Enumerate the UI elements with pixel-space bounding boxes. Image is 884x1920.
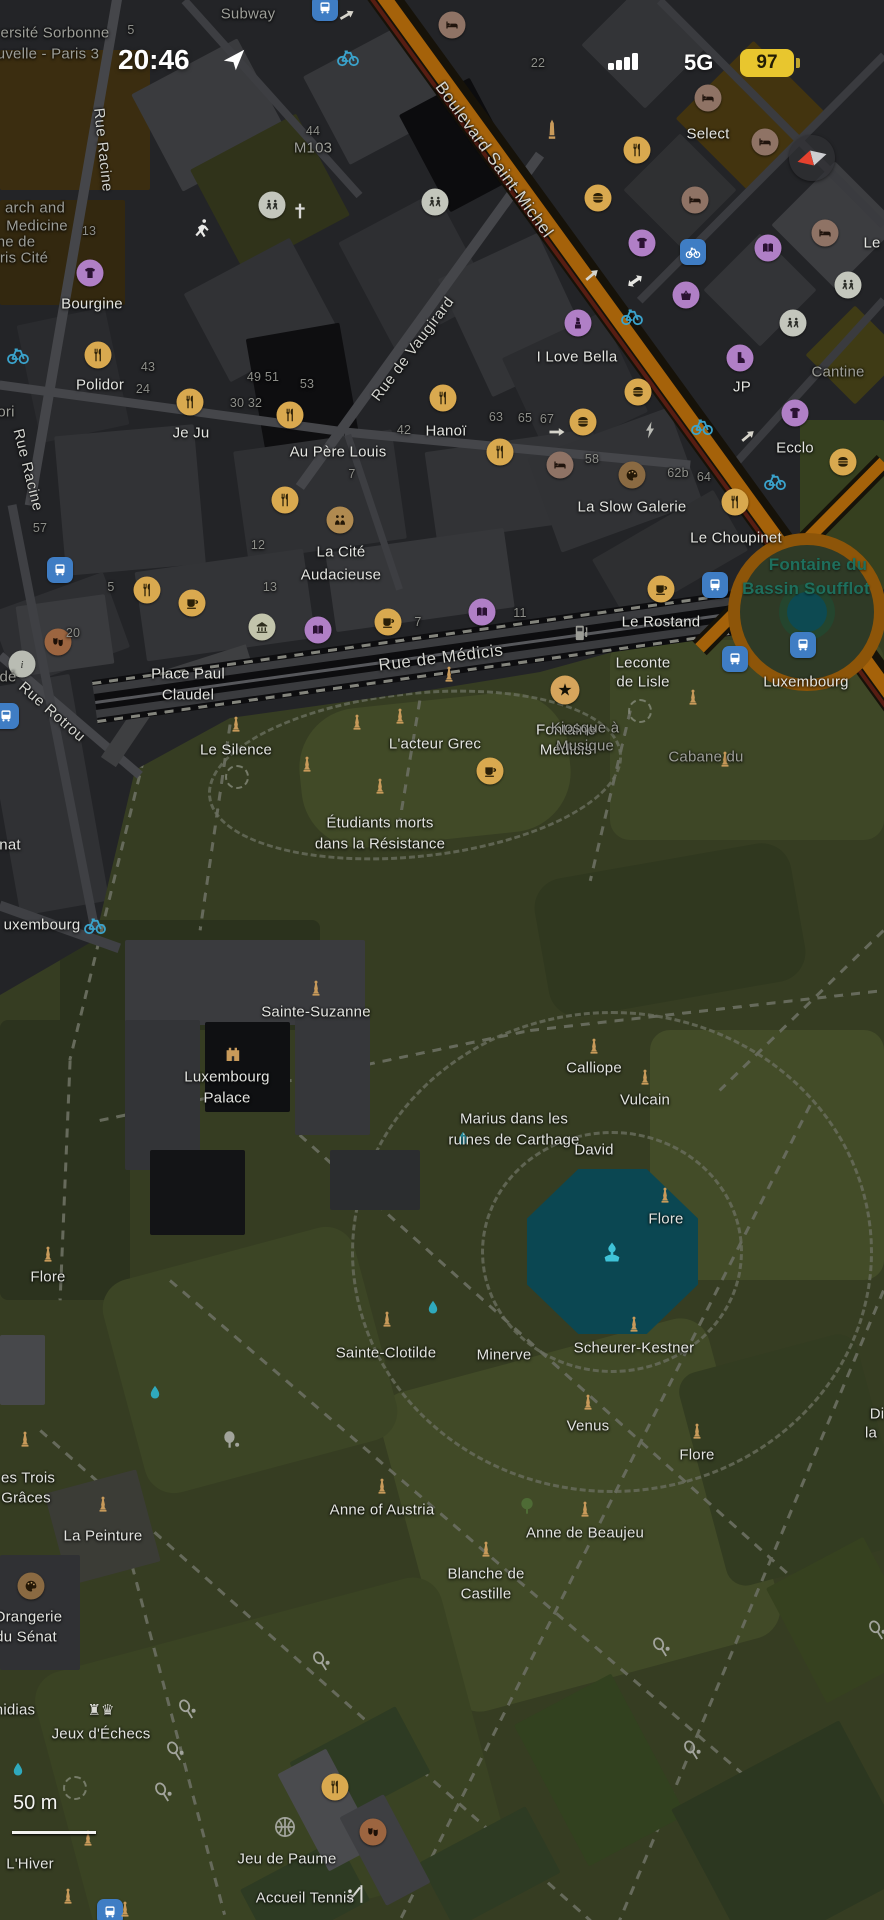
map-label[interactable]: Bassin Soufflot [742, 579, 870, 599]
map-label[interactable]: 57 [33, 521, 47, 535]
hotel-icon[interactable] [812, 220, 839, 247]
map-label[interactable]: Castille [461, 1586, 512, 1603]
map-label[interactable]: Flore [30, 1269, 65, 1286]
statue-icon[interactable] [390, 707, 410, 727]
statue-icon[interactable] [578, 1393, 598, 1413]
map-label[interactable]: 5 [107, 580, 114, 594]
map-label[interactable]: Place Paul [151, 666, 225, 683]
map-label[interactable]: 7 [414, 615, 421, 629]
basketball-icon[interactable] [272, 1814, 298, 1840]
statue-icon[interactable] [624, 1315, 644, 1335]
map-label[interactable]: ruines de Carthage [448, 1132, 579, 1149]
map-label[interactable]: Audacieuse [301, 567, 381, 584]
map-label[interactable]: Grâces [1, 1490, 51, 1507]
shopping-basket-icon[interactable] [673, 282, 700, 309]
map-canvas[interactable]: i★♜♛ersité Sorbonneuvelle - Paris 35Subw… [0, 0, 884, 1920]
statue-icon[interactable] [370, 777, 390, 797]
map-label[interactable]: Leconte [616, 655, 671, 672]
map-label[interactable]: Au Père Louis [290, 444, 387, 461]
map-label[interactable]: 64 [697, 470, 711, 484]
burger-icon[interactable] [625, 379, 652, 406]
map-label[interactable]: 13 [82, 224, 96, 238]
statue-icon[interactable] [226, 715, 246, 735]
statue-icon[interactable] [575, 1500, 595, 1520]
map-label[interactable]: Flore [679, 1447, 714, 1464]
bike-icon[interactable] [763, 469, 787, 493]
map-label[interactable]: 13 [263, 580, 277, 594]
map-label[interactable]: L'acteur Grec [389, 736, 481, 753]
road-segment [182, 0, 363, 198]
circular-path-icon [628, 699, 652, 723]
map-label[interactable]: 58 [585, 452, 599, 466]
bike-icon[interactable] [336, 45, 360, 69]
map-label[interactable]: Anne of Austria [330, 1502, 435, 1519]
restaurant-icon[interactable] [134, 577, 161, 604]
map-label[interactable]: 5 [127, 23, 134, 37]
bike-icon[interactable] [690, 414, 714, 438]
map-label[interactable]: 11 [513, 606, 526, 620]
map-label[interactable]: de Lisle [616, 674, 669, 691]
restaurant-icon[interactable] [487, 439, 514, 466]
scale-label: 50 m [13, 1792, 57, 1815]
map-label[interactable]: M103 [294, 140, 332, 157]
bike-icon[interactable] [620, 304, 644, 328]
map-label[interactable]: Cantine [811, 364, 864, 381]
scale-bar [12, 1831, 96, 1834]
map-label[interactable]: Étudiants morts [326, 815, 433, 832]
restaurant-icon[interactable] [85, 342, 112, 369]
burger-icon[interactable] [570, 409, 597, 436]
map-label[interactable]: dé [0, 669, 17, 686]
attraction-star-icon[interactable]: ★ [551, 676, 580, 705]
transit-bus-icon[interactable] [790, 632, 816, 658]
playground-icon[interactable] [422, 189, 449, 216]
statue-icon[interactable] [297, 755, 317, 775]
map-label[interactable]: Cabane du [668, 749, 743, 766]
map-label[interactable]: Medicine [6, 218, 68, 235]
map-label[interactable]: 24 [136, 382, 150, 396]
map-label[interactable]: I Love Bella [537, 349, 618, 366]
statue-icon[interactable] [476, 1540, 496, 1560]
playground-icon[interactable] [835, 272, 862, 299]
map-label[interactable]: 49 51 [247, 370, 279, 384]
hotel-icon[interactable] [682, 187, 709, 214]
church-cross-icon[interactable] [290, 201, 310, 221]
art-gallery-icon[interactable] [619, 462, 646, 489]
transit-bus-icon[interactable] [702, 572, 728, 598]
map-label[interactable]: Di [870, 1406, 884, 1423]
map-label[interactable]: 7 [348, 467, 355, 481]
map-label[interactable]: Fontaine du [769, 555, 868, 575]
map-label[interactable]: La Slow Galerie [578, 499, 687, 516]
cafe-icon[interactable] [179, 590, 206, 617]
map-label[interactable]: Bourgine [61, 296, 123, 313]
tennis-racket-icon[interactable] [163, 1740, 187, 1764]
maps-app-screen[interactable]: i★♜♛ersité Sorbonneuvelle - Paris 35Subw… [0, 0, 884, 1920]
ev-station-icon[interactable] [571, 621, 593, 643]
transit-bus-icon[interactable] [47, 557, 73, 583]
theater-masks-icon[interactable] [360, 1819, 387, 1846]
map-label[interactable]: ori [0, 404, 15, 421]
tennis-racket-icon[interactable] [649, 1636, 673, 1660]
map-label[interactable]: 67 [540, 412, 554, 426]
restaurant-icon[interactable] [177, 389, 204, 416]
statue-icon[interactable] [115, 1900, 135, 1920]
tennis-racket-icon[interactable] [175, 1698, 199, 1722]
statue-icon[interactable] [584, 1037, 604, 1057]
restaurant-icon[interactable] [430, 385, 457, 412]
map-label[interactable]: Minerve [477, 1347, 532, 1364]
statue-icon[interactable] [38, 1245, 58, 1265]
map-label[interactable]: 62b [667, 466, 688, 480]
bookstore-icon[interactable] [755, 235, 782, 262]
map-label[interactable]: Flore [648, 1211, 683, 1228]
statue-icon[interactable] [687, 1422, 707, 1442]
burger-icon[interactable] [830, 449, 857, 476]
statue-icon[interactable] [306, 979, 326, 999]
hotel-icon[interactable] [695, 85, 722, 112]
cafe-icon[interactable] [375, 609, 402, 636]
map-label[interactable]: Sainte-Clotilde [336, 1345, 437, 1362]
map-label[interactable]: Le [863, 235, 880, 252]
map-label[interactable]: Accueil Tennis [256, 1890, 354, 1907]
map-label[interactable]: Le Silence [200, 742, 272, 759]
monument-icon[interactable] [540, 118, 564, 142]
bookstore-icon[interactable] [305, 617, 332, 644]
map-label[interactable]: nat [0, 837, 21, 854]
statue-icon[interactable] [58, 1887, 78, 1907]
map-label[interactable]: Subway [221, 6, 276, 23]
map-label[interactable]: arch and [5, 200, 65, 217]
map-label[interactable]: 30 32 [230, 396, 262, 410]
map-label[interactable]: 44 [306, 124, 320, 138]
map-label[interactable]: Palace [203, 1090, 250, 1107]
fountain-icon[interactable] [599, 1239, 625, 1265]
map-label[interactable]: uxembourg [4, 917, 81, 934]
hotel-icon[interactable] [439, 12, 466, 39]
map-label[interactable]: David [574, 1142, 613, 1159]
shoes-icon[interactable] [727, 345, 754, 372]
restaurant-icon[interactable] [722, 489, 749, 516]
running-icon[interactable] [191, 217, 213, 239]
map-label[interactable]: dans la Résistance [315, 836, 445, 853]
burger-icon[interactable] [585, 185, 612, 212]
bike-icon[interactable] [6, 343, 30, 367]
map-label[interactable]: Je Ju [173, 425, 210, 442]
statue-icon[interactable] [372, 1477, 392, 1497]
castle-icon[interactable] [221, 1041, 245, 1065]
roads-layer [0, 0, 884, 1920]
cafe-icon[interactable] [477, 758, 504, 785]
clothing-icon[interactable] [629, 230, 656, 257]
map-label[interactable]: 63 [489, 410, 503, 424]
map-label[interactable]: Ecclo [776, 440, 814, 457]
map-label[interactable]: Vulcain [620, 1092, 670, 1109]
circular-path-icon [225, 765, 249, 789]
tree-icon[interactable] [517, 1496, 537, 1516]
map-label[interactable]: du Sénat [0, 1629, 57, 1646]
map-label[interactable]: hidias [0, 1702, 35, 1719]
hotel-icon[interactable] [752, 129, 779, 156]
statue-icon[interactable] [655, 1186, 675, 1206]
art-gallery-icon[interactable] [18, 1573, 45, 1600]
community-icon[interactable] [327, 507, 354, 534]
map-label[interactable]: ne de [0, 234, 35, 251]
tennis-racket-icon[interactable] [151, 1781, 175, 1805]
map-label[interactable]: Le Rostand [622, 614, 701, 631]
map-label[interactable]: ris Cité [0, 250, 48, 267]
map-label[interactable]: 12 [251, 538, 265, 552]
map-label[interactable]: 20 [66, 626, 80, 640]
circular-path-icon [63, 1776, 87, 1800]
map-label[interactable]: Musique [556, 738, 614, 755]
svg-text:i: i [21, 660, 24, 671]
tennis-racket-icon[interactable] [309, 1650, 333, 1674]
statue-icon[interactable] [439, 665, 459, 685]
compass-button[interactable] [789, 135, 835, 181]
restaurant-icon[interactable] [624, 137, 651, 164]
map-label[interactable]: Luxembourg [184, 1069, 269, 1086]
map-label[interactable]: 53 [300, 377, 314, 391]
map-label[interactable]: la [865, 1425, 877, 1442]
water-drop-icon[interactable] [424, 1299, 442, 1317]
map-label[interactable]: 65 [518, 411, 532, 425]
transit-bus-icon[interactable] [0, 703, 19, 729]
map-label[interactable]: La Peinture [64, 1528, 143, 1545]
bike-rental-icon[interactable] [680, 239, 706, 265]
playground-icon[interactable] [259, 192, 286, 219]
tennis-racket-icon[interactable] [680, 1739, 704, 1763]
map-label[interactable]: JP [733, 379, 751, 396]
hotel-icon[interactable] [547, 452, 574, 479]
clothing-icon[interactable] [782, 400, 809, 427]
pingpong-icon[interactable] [221, 1429, 243, 1451]
map-label[interactable]: Orangerie [0, 1609, 62, 1626]
map-label[interactable]: Claudel [162, 687, 214, 704]
map-label[interactable]: Polidor [76, 377, 124, 394]
map-label[interactable]: Scheurer-Kestner [574, 1340, 695, 1357]
map-label[interactable]: Le Choupinet [690, 530, 782, 547]
map-label[interactable]: Jeu de Paume [237, 1851, 336, 1868]
map-label[interactable]: Kiosque à [551, 720, 620, 737]
statue-icon[interactable] [377, 1310, 397, 1330]
map-label[interactable]: es Trois [1, 1470, 55, 1487]
map-label[interactable]: Luxembourg [763, 674, 848, 691]
statue-icon[interactable] [635, 1068, 655, 1088]
map-label[interactable]: 22 [531, 56, 545, 70]
map-label[interactable]: uvelle - Paris 3 [0, 46, 99, 63]
map-label[interactable]: Marius dans les [460, 1111, 568, 1128]
map-label[interactable]: 42 [397, 423, 411, 437]
beauty-icon[interactable] [565, 310, 592, 337]
restaurant-icon[interactable] [272, 487, 299, 514]
road-segment [637, 52, 884, 303]
compass-needle-icon [794, 140, 831, 177]
map-label[interactable]: L'Hiver [6, 1856, 54, 1873]
map-label[interactable]: Jeux d'Échecs [52, 1726, 151, 1743]
map-label[interactable]: Calliope [566, 1060, 622, 1077]
map-label[interactable]: La Cité [317, 544, 366, 561]
map-label[interactable]: 43 [141, 360, 155, 374]
playground-icon[interactable] [780, 310, 807, 337]
bookstore-icon[interactable] [469, 599, 496, 626]
chess-pieces-icon[interactable]: ♜♛ [88, 1701, 115, 1719]
statue-icon[interactable] [15, 1430, 35, 1450]
bike-icon[interactable] [83, 913, 107, 937]
map-label[interactable]: Anne de Beaujeu [526, 1525, 644, 1542]
cafe-icon[interactable] [648, 576, 675, 603]
map-label[interactable]: Sainte-Suzanne [261, 1004, 371, 1021]
restaurant-icon[interactable] [322, 1774, 349, 1801]
map-label[interactable]: Venus [567, 1418, 610, 1435]
bank-icon[interactable] [249, 614, 276, 641]
map-label[interactable]: Blanche de [447, 1566, 524, 1583]
map-label[interactable]: ersité Sorbonne [1, 25, 110, 42]
statue-icon[interactable] [93, 1495, 113, 1515]
charging-icon[interactable] [640, 420, 660, 440]
statue-icon[interactable] [683, 688, 703, 708]
restaurant-icon[interactable] [277, 402, 304, 429]
water-drop-icon[interactable] [9, 1761, 27, 1779]
tennis-racket-icon[interactable] [865, 1619, 884, 1643]
water-drop-icon[interactable] [146, 1384, 164, 1402]
map-label[interactable]: Hanoï [425, 423, 466, 440]
clothing-icon[interactable] [77, 260, 104, 287]
statue-icon[interactable] [347, 713, 367, 733]
transit-bus-icon[interactable] [722, 646, 748, 672]
map-label[interactable]: Select [687, 126, 730, 143]
